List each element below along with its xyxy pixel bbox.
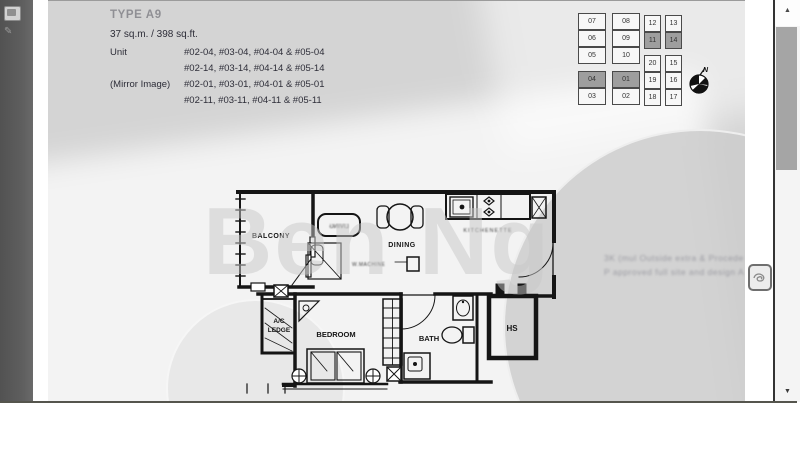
- bedroom-label: BEDROOM: [316, 330, 355, 339]
- mirror-line: #02-01, #03-01, #04-01 & #05-01: [184, 79, 325, 90]
- mirror-line: #02-11, #03-11, #04-11 & #05-11: [184, 95, 322, 106]
- unit-line: #02-14, #03-14, #04-14 & #05-14: [184, 63, 325, 74]
- keyplan-unit-16: 16: [665, 72, 682, 89]
- dining-label: DINING: [388, 242, 416, 249]
- keyplan-unit-02: 02: [612, 88, 640, 105]
- keyplan-unit-14-highlighted: 14: [665, 32, 682, 49]
- pencil-icon[interactable]: ✎: [4, 26, 16, 38]
- keyplan-unit-15: 15: [665, 55, 682, 72]
- unit-area: 37 sq.m. / 398 sq.ft.: [110, 29, 440, 40]
- living-label: LIVING: [329, 224, 349, 230]
- keyplan-right-bottom: 20 15 19 16 18 17: [644, 55, 682, 106]
- keyplan-unit-10: 10: [612, 47, 640, 64]
- unit-label: Unit: [110, 47, 127, 58]
- ac-ledge-label-2: LEDGE: [268, 327, 291, 334]
- keyplan-left-bottom: 04 01 03 02: [578, 71, 640, 105]
- washer-label: W.MACHINE: [352, 262, 386, 268]
- floorplan-drawing: BALCONY LIVING DINING KITCHENETTE A/C LE…: [195, 181, 575, 403]
- keyplan-unit-05: 05: [578, 47, 606, 64]
- mirror-label: (Mirror Image): [110, 79, 170, 90]
- keyplan-unit-04-highlighted: 04: [578, 71, 606, 88]
- scroll-down-button[interactable]: ▼: [775, 384, 800, 400]
- unit-line: #02-04, #03-04, #04-04 & #05-04: [184, 47, 325, 58]
- keyplan-unit-01-highlighted: 01: [612, 71, 640, 88]
- kitchenette-label: KITCHENETTE: [463, 228, 512, 234]
- keyplan-unit-20: 20: [644, 55, 661, 72]
- balcony-label: BALCONY: [252, 233, 290, 240]
- vertical-scrollbar[interactable]: ▲ ▼: [773, 0, 800, 402]
- disclaimer-line: P approved full site and design A: [604, 265, 745, 279]
- keyplan-unit-12: 12: [644, 15, 661, 32]
- keyplan-unit-18: 18: [644, 89, 661, 106]
- keyplan-unit-11-highlighted: 11: [644, 32, 661, 49]
- keyplan-left-top: 07 08 06 09 05 10: [578, 13, 640, 64]
- viewer-left-strip: ✎: [0, 0, 33, 402]
- keyplan-unit-19: 19: [644, 72, 661, 89]
- disclaimer-note: 3K (mul Outside extra & Procede d P appr…: [604, 251, 745, 279]
- hs-label: HS: [506, 324, 518, 333]
- keyplan-right-top: 12 13 11 14: [644, 15, 682, 49]
- keyplan-unit-13: 13: [665, 15, 682, 32]
- title-block: TYPE A9 37 sq.m. / 398 sq.ft. Unit #02-0…: [110, 9, 440, 111]
- keyplan-unit-06: 06: [578, 30, 606, 47]
- keyplan-unit-17: 17: [665, 89, 682, 106]
- thumbnail-icon[interactable]: [4, 6, 21, 21]
- ac-ledge-label-1: A/C: [273, 318, 285, 325]
- scroll-thumb[interactable]: [776, 27, 797, 170]
- stamp-icon: [748, 264, 772, 291]
- north-compass-icon: N: [688, 63, 714, 97]
- keyplan-unit-08: 08: [612, 13, 640, 30]
- keyplan-unit-03: 03: [578, 88, 606, 105]
- page-title: TYPE A9: [110, 9, 440, 21]
- scroll-up-button[interactable]: ▲: [775, 0, 800, 26]
- bath-label: BATH: [419, 334, 439, 343]
- keyplan-unit-09: 09: [612, 30, 640, 47]
- keyplan-unit-07: 07: [578, 13, 606, 30]
- floorplan-page: TYPE A9 37 sq.m. / 398 sq.ft. Unit #02-0…: [48, 0, 745, 403]
- disclaimer-line: 3K (mul Outside extra & Procede d: [604, 251, 745, 265]
